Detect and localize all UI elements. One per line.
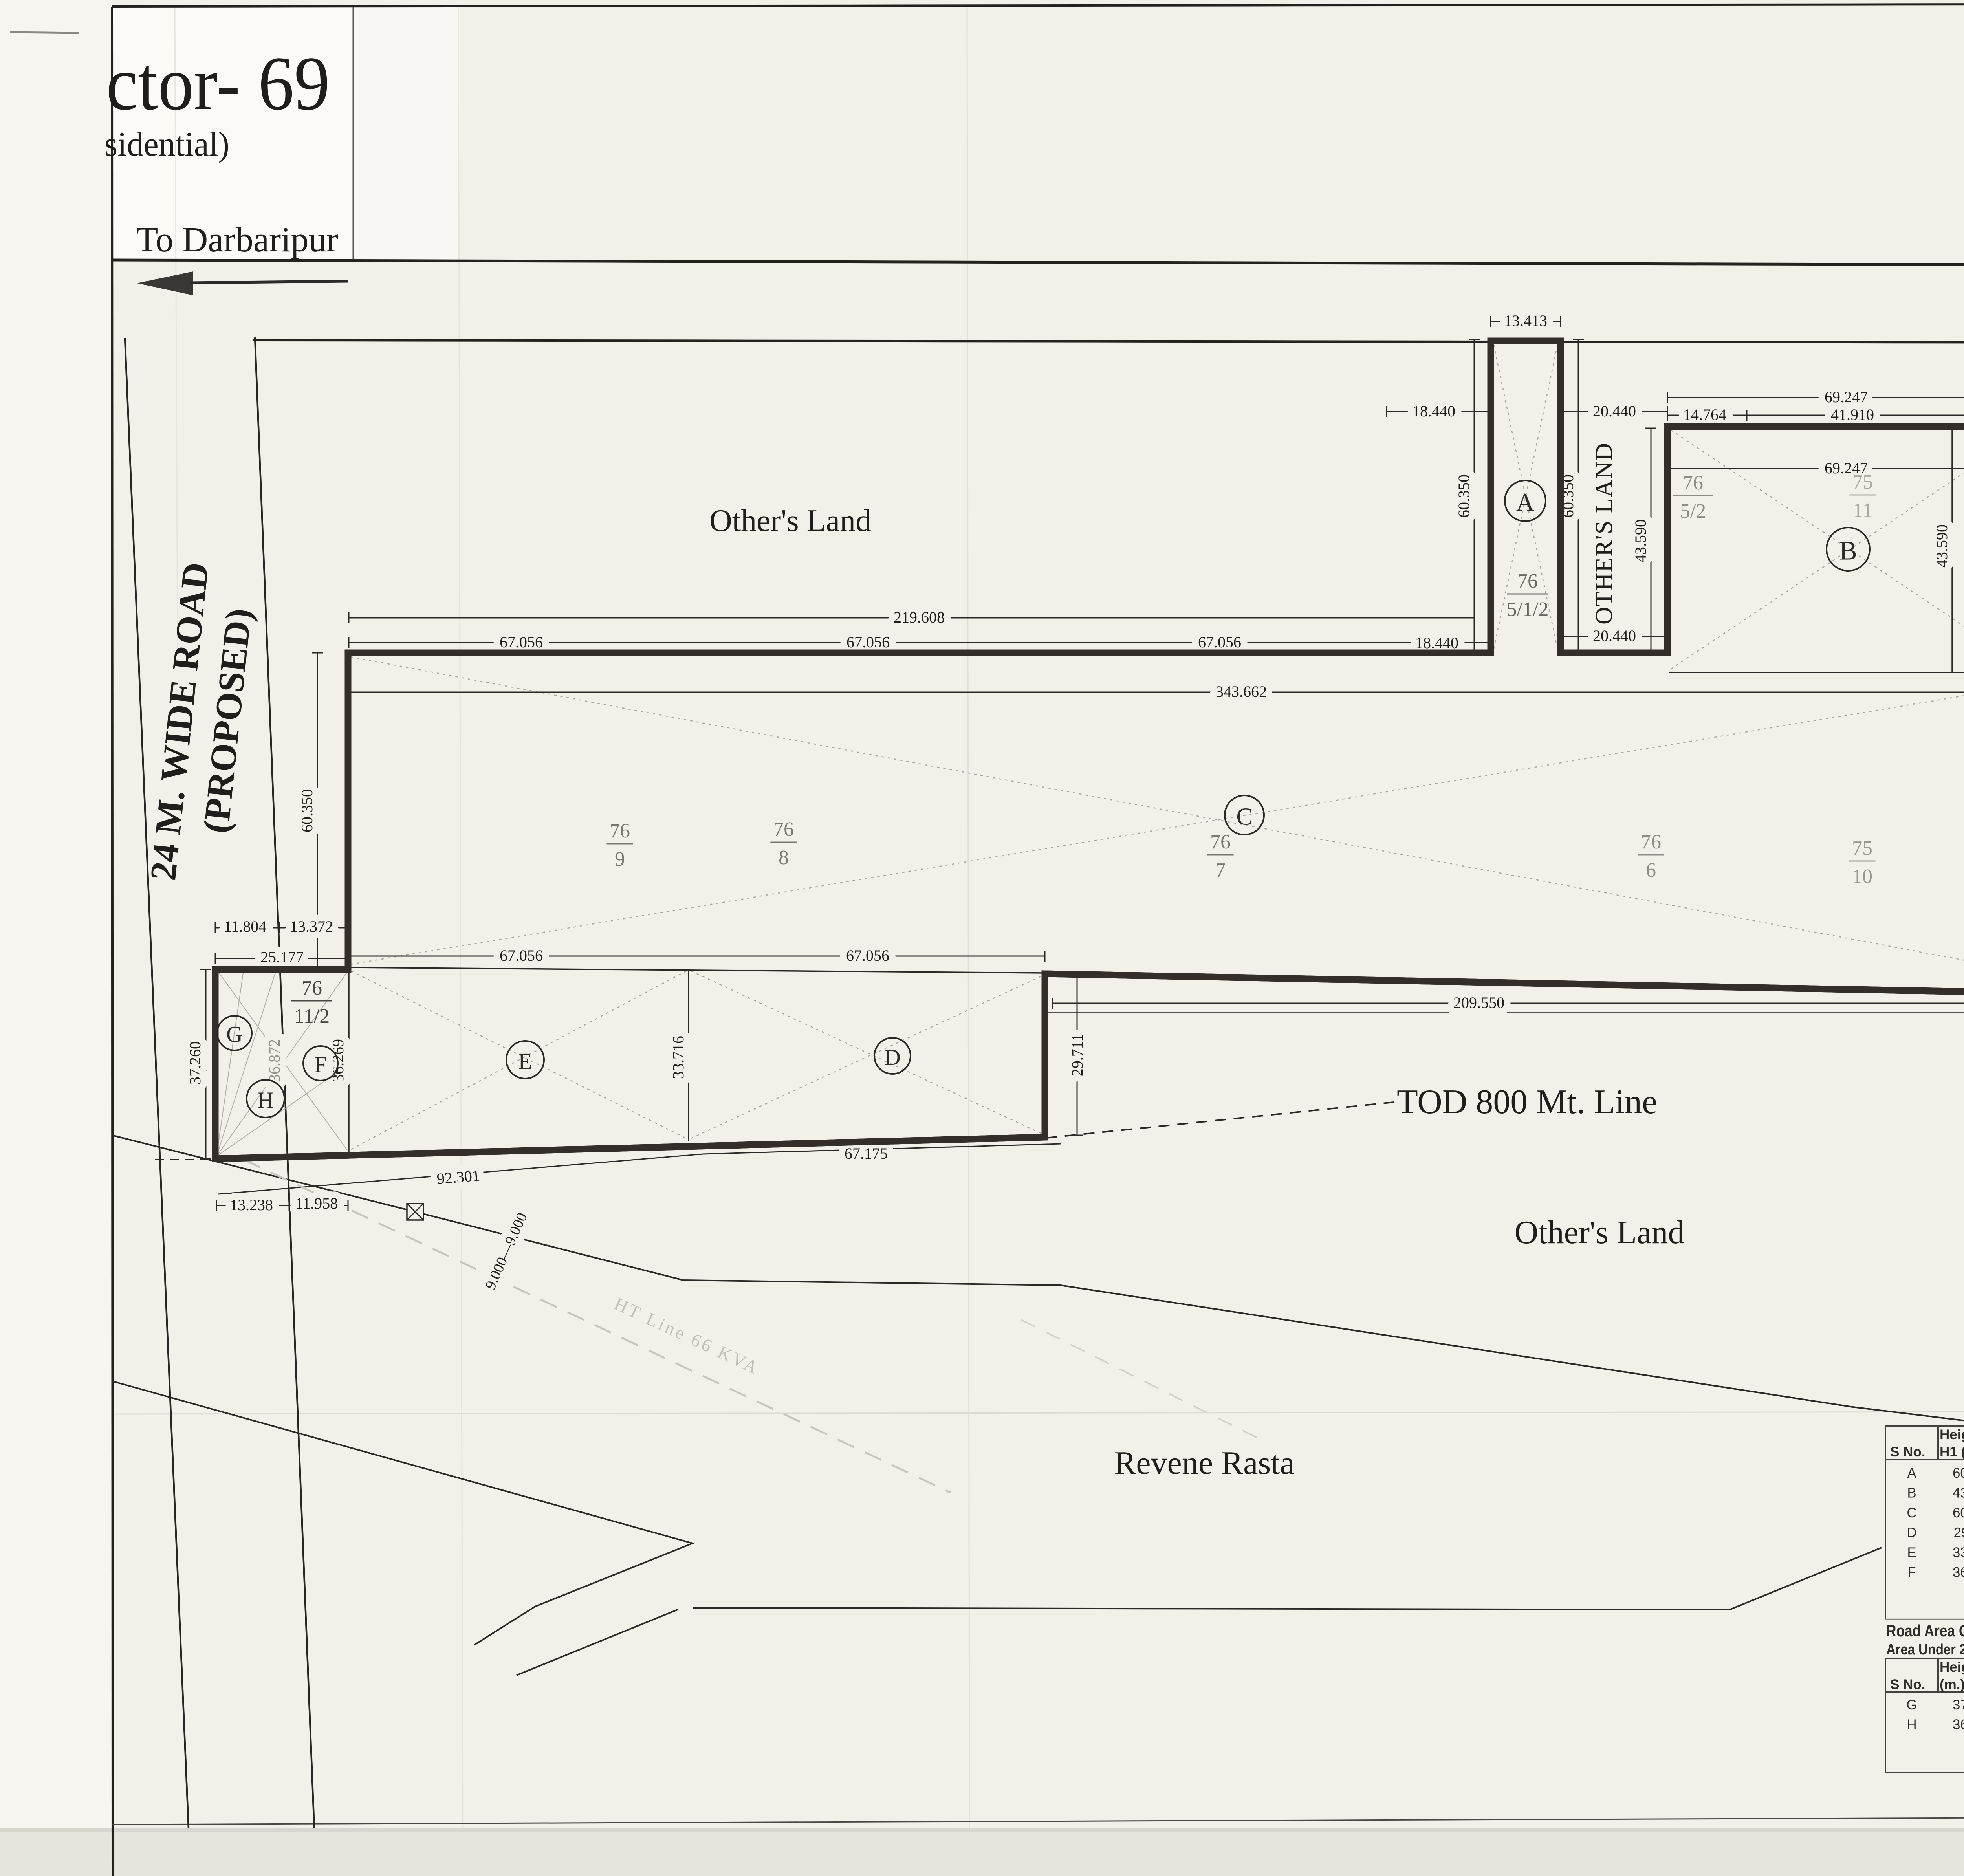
svg-text:29.711: 29.711 bbox=[1068, 1034, 1086, 1077]
svg-text:OTHER'S LAND: OTHER'S LAND bbox=[1591, 442, 1618, 625]
svg-text:76: 76 bbox=[1641, 831, 1661, 853]
svg-text:60.350: 60.350 bbox=[298, 789, 316, 832]
svg-text:20.440: 20.440 bbox=[1593, 627, 1636, 645]
svg-text:D: D bbox=[884, 1044, 901, 1070]
svg-text:(m.): (m.) bbox=[1940, 1677, 1964, 1692]
svg-text:C: C bbox=[1236, 804, 1252, 830]
svg-text:33.716: 33.716 bbox=[669, 1036, 687, 1079]
svg-text:43.590: 43.590 bbox=[1632, 519, 1649, 562]
svg-text:7: 7 bbox=[1215, 859, 1226, 881]
svg-text:29.711: 29.711 bbox=[1954, 1525, 1964, 1541]
svg-text:76: 76 bbox=[1683, 472, 1703, 494]
svg-text:11: 11 bbox=[1853, 499, 1872, 522]
svg-text:TOD 800 Mt. Line: TOD 800 Mt. Line bbox=[1397, 1083, 1657, 1121]
svg-text:219.608: 219.608 bbox=[894, 608, 945, 626]
svg-text:Other's Land: Other's Land bbox=[709, 504, 871, 538]
svg-text:11/2: 11/2 bbox=[294, 1005, 330, 1028]
svg-text:Road Area Calculation: Road Area Calculation bbox=[1886, 1621, 1964, 1640]
svg-text:92.301: 92.301 bbox=[436, 1166, 481, 1187]
svg-text:10: 10 bbox=[1852, 865, 1872, 888]
svg-text:67.056: 67.056 bbox=[1198, 633, 1241, 651]
svg-text:14.764: 14.764 bbox=[1683, 406, 1726, 423]
svg-text:To Darbaripur: To Darbaripur bbox=[136, 220, 338, 259]
svg-text:G: G bbox=[1906, 1697, 1917, 1713]
svg-text:9: 9 bbox=[615, 848, 625, 870]
svg-text:A: A bbox=[1907, 1466, 1916, 1481]
svg-text:Height -: Height - bbox=[1940, 1427, 1964, 1442]
svg-text:36.269: 36.269 bbox=[1953, 1565, 1964, 1580]
svg-text:13.413: 13.413 bbox=[1504, 312, 1547, 330]
svg-text:76: 76 bbox=[773, 818, 794, 841]
svg-text:B: B bbox=[1907, 1486, 1916, 1501]
svg-text:G: G bbox=[226, 1021, 243, 1047]
svg-text:B: B bbox=[1839, 536, 1857, 566]
svg-text:67.056: 67.056 bbox=[846, 633, 890, 651]
svg-text:13.372: 13.372 bbox=[290, 918, 333, 935]
svg-text:H: H bbox=[1907, 1717, 1916, 1732]
svg-text:36.872: 36.872 bbox=[1953, 1717, 1964, 1732]
svg-text:E: E bbox=[1907, 1545, 1916, 1560]
svg-text:18.440: 18.440 bbox=[1415, 634, 1458, 652]
svg-text:25.177: 25.177 bbox=[260, 948, 304, 966]
svg-text:E: E bbox=[518, 1048, 532, 1074]
svg-text:C: C bbox=[1907, 1505, 1916, 1521]
svg-text:8: 8 bbox=[779, 846, 789, 869]
svg-text:343.662: 343.662 bbox=[1216, 683, 1267, 700]
svg-text:Revene Rasta: Revene Rasta bbox=[1114, 1445, 1295, 1481]
svg-text:Area Under 24m wide road: Area Under 24m wide road bbox=[1886, 1641, 1964, 1658]
svg-text:209.550: 209.550 bbox=[1453, 994, 1504, 1011]
svg-text:76: 76 bbox=[302, 977, 322, 999]
svg-text:37.260: 37.260 bbox=[1953, 1697, 1964, 1713]
svg-text:67.056: 67.056 bbox=[846, 947, 889, 964]
svg-text:18.440: 18.440 bbox=[1412, 402, 1455, 420]
svg-text:43.590: 43.590 bbox=[1933, 524, 1951, 568]
svg-text:5/1/2: 5/1/2 bbox=[1507, 598, 1549, 621]
svg-text:S No.: S No. bbox=[1890, 1677, 1925, 1692]
svg-text:76: 76 bbox=[1210, 831, 1231, 853]
svg-text:36.872: 36.872 bbox=[266, 1039, 283, 1082]
svg-text:F: F bbox=[1907, 1565, 1916, 1580]
svg-text:43.590: 43.590 bbox=[1953, 1486, 1964, 1501]
svg-text:sidential): sidential) bbox=[104, 125, 229, 163]
svg-text:ctor- 69: ctor- 69 bbox=[106, 41, 330, 126]
svg-text:76: 76 bbox=[610, 820, 630, 842]
svg-text:Other's Land: Other's Land bbox=[1515, 1214, 1685, 1251]
svg-text:20.440: 20.440 bbox=[1593, 402, 1636, 420]
svg-text:F: F bbox=[314, 1052, 327, 1077]
svg-text:75: 75 bbox=[1852, 837, 1872, 859]
svg-text:37.260: 37.260 bbox=[186, 1041, 204, 1085]
svg-text:67.175: 67.175 bbox=[845, 1145, 888, 1162]
svg-text:60.350: 60.350 bbox=[1953, 1505, 1964, 1521]
svg-text:6: 6 bbox=[1646, 859, 1656, 881]
svg-text:5/2: 5/2 bbox=[1680, 500, 1706, 522]
svg-text:11.958: 11.958 bbox=[295, 1194, 338, 1212]
svg-text:60.350: 60.350 bbox=[1953, 1466, 1964, 1481]
svg-text:67.056: 67.056 bbox=[500, 633, 543, 651]
svg-text:S No.: S No. bbox=[1890, 1444, 1925, 1460]
svg-text:75: 75 bbox=[1852, 471, 1873, 493]
svg-text:76: 76 bbox=[1517, 570, 1538, 592]
svg-text:33.716: 33.716 bbox=[1953, 1545, 1964, 1560]
svg-text:Height -H: Height -H bbox=[1940, 1660, 1964, 1675]
svg-text:67.056: 67.056 bbox=[500, 947, 543, 964]
svg-text:60.350: 60.350 bbox=[1455, 474, 1473, 518]
svg-text:D: D bbox=[1907, 1525, 1916, 1541]
svg-text:H: H bbox=[257, 1087, 274, 1113]
svg-text:A: A bbox=[1516, 488, 1534, 516]
svg-text:13.238: 13.238 bbox=[230, 1196, 273, 1214]
svg-text:11.804: 11.804 bbox=[224, 918, 267, 935]
svg-text:69.247: 69.247 bbox=[1825, 388, 1868, 406]
svg-text:H1 (m.): H1 (m.) bbox=[1940, 1444, 1964, 1460]
svg-text:41.910: 41.910 bbox=[1831, 406, 1874, 423]
